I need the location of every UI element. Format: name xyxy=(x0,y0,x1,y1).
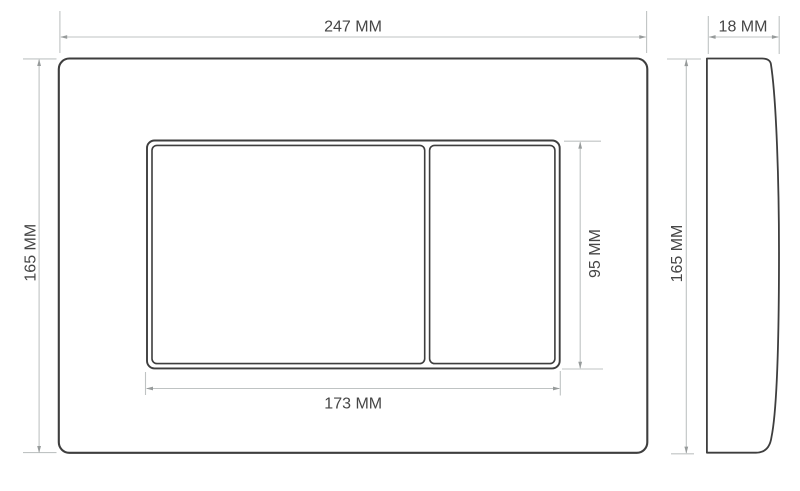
svg-text:95 MM: 95 MM xyxy=(587,229,604,278)
svg-text:165 MM: 165 MM xyxy=(23,224,40,282)
svg-text:18 MM: 18 MM xyxy=(719,19,768,36)
svg-text:165 MM: 165 MM xyxy=(669,225,686,283)
svg-text:247 MM: 247 MM xyxy=(324,19,382,36)
svg-text:173 MM: 173 MM xyxy=(324,396,382,413)
